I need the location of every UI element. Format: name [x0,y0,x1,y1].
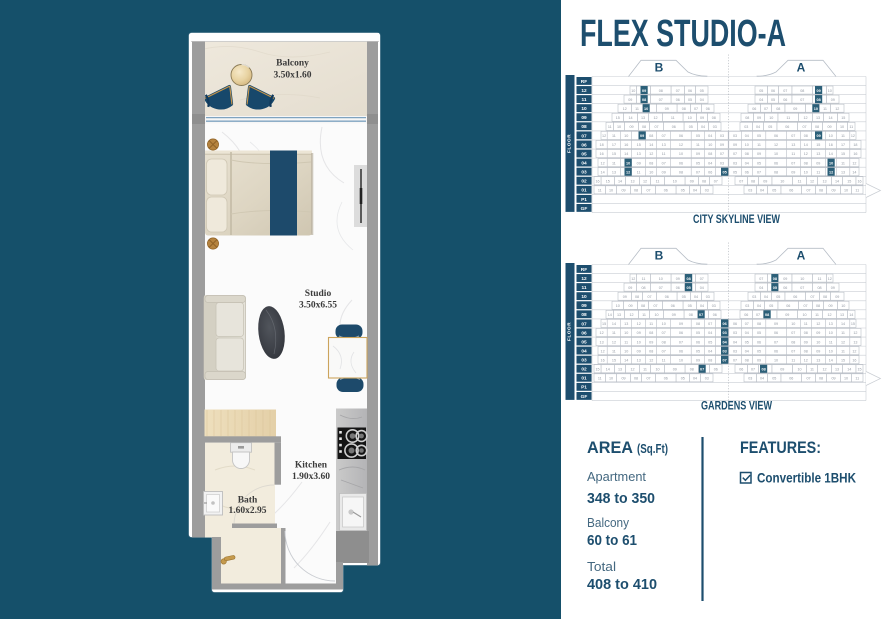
svg-text:05: 05 [771,98,775,102]
svg-text:13: 13 [816,116,820,120]
svg-text:10: 10 [840,125,844,129]
svg-text:RF: RF [581,79,587,85]
svg-text:10: 10 [624,134,628,138]
svg-text:05: 05 [773,286,777,290]
svg-text:10: 10 [631,89,635,93]
svg-text:11: 11 [841,349,845,353]
svg-text:07: 07 [659,98,663,102]
svg-text:04: 04 [700,304,704,308]
svg-text:09: 09 [816,161,820,165]
svg-text:03: 03 [712,304,716,308]
svg-text:04: 04 [708,349,712,353]
svg-text:10: 10 [804,170,808,174]
svg-text:07: 07 [722,358,726,362]
svg-text:3.50x1.60: 3.50x1.60 [274,71,312,81]
svg-text:09: 09 [757,116,761,120]
svg-text:07: 07 [700,367,704,371]
svg-text:11: 11 [849,125,853,129]
svg-text:04: 04 [756,125,760,129]
svg-text:04: 04 [760,189,764,193]
svg-text:09: 09 [649,340,653,344]
svg-text:408 to 410: 408 to 410 [587,577,657,593]
svg-text:12: 12 [629,313,633,317]
svg-text:06: 06 [752,107,756,111]
svg-text:11: 11 [581,285,586,291]
svg-text:14: 14 [835,179,839,183]
svg-text:08: 08 [649,134,653,138]
svg-text:07: 07 [646,377,650,381]
svg-text:12: 12 [851,134,855,138]
svg-text:03: 03 [733,134,737,138]
svg-text:03: 03 [733,349,737,353]
svg-text:09: 09 [642,89,646,93]
svg-text:03: 03 [705,189,709,193]
svg-text:08: 08 [686,277,690,281]
svg-text:09: 09 [816,134,820,138]
svg-text:08: 08 [649,349,653,353]
svg-text:15: 15 [841,152,845,156]
svg-text:GF: GF [581,206,588,212]
svg-text:12: 12 [827,313,831,317]
svg-text:07: 07 [696,170,700,174]
svg-text:11: 11 [829,340,833,344]
svg-text:Balcony: Balcony [276,59,309,69]
svg-text:05: 05 [757,134,761,138]
svg-text:14: 14 [624,152,628,156]
svg-text:10: 10 [791,322,795,326]
svg-text:12: 12 [630,367,634,371]
svg-text:05: 05 [696,134,700,138]
svg-text:05: 05 [757,161,761,165]
svg-text:14: 14 [829,152,833,156]
svg-text:08: 08 [642,125,646,129]
svg-text:06: 06 [676,286,680,290]
svg-text:09: 09 [763,179,767,183]
svg-text:15: 15 [612,358,616,362]
svg-text:11: 11 [612,349,616,353]
svg-text:Kitchen: Kitchen [295,461,328,471]
svg-text:06: 06 [789,189,793,193]
svg-text:07: 07 [739,179,743,183]
svg-text:12: 12 [649,152,653,156]
svg-text:14: 14 [618,179,622,183]
svg-text:10: 10 [679,358,683,362]
svg-text:10: 10 [844,377,848,381]
svg-text:Studio: Studio [305,289,332,299]
svg-text:FLEX STUDIO-A: FLEX STUDIO-A [580,13,786,55]
svg-text:08: 08 [791,340,795,344]
svg-text:10: 10 [829,161,833,165]
svg-text:06: 06 [665,295,669,299]
svg-text:11: 11 [804,322,808,326]
svg-text:11: 11 [791,152,795,156]
svg-text:07: 07 [751,367,755,371]
svg-text:12: 12 [853,331,857,335]
svg-text:03: 03 [752,295,756,299]
svg-text:12: 12 [810,179,814,183]
svg-text:07: 07 [720,152,724,156]
svg-text:05: 05 [733,170,737,174]
svg-text:11: 11 [637,170,641,174]
svg-text:14: 14 [612,322,616,326]
svg-text:03: 03 [745,304,749,308]
svg-text:03: 03 [705,377,709,381]
svg-text:11: 11 [612,161,616,165]
svg-text:12: 12 [623,107,627,111]
svg-text:08: 08 [804,161,808,165]
svg-text:13: 13 [816,152,820,156]
svg-text:15: 15 [841,358,845,362]
svg-text:FLOOR: FLOOR [566,134,571,153]
svg-text:12: 12 [602,134,606,138]
svg-text:12: 12 [612,340,616,344]
svg-text:09: 09 [662,170,666,174]
svg-text:09: 09 [780,367,784,371]
svg-text:11: 11 [608,125,612,129]
svg-text:16: 16 [600,152,604,156]
svg-text:14: 14 [849,313,853,317]
svg-text:FEATURES:: FEATURES: [740,439,821,457]
svg-text:05: 05 [686,286,690,290]
svg-text:14: 14 [601,170,605,174]
svg-text:06: 06 [783,286,787,290]
svg-text:10: 10 [609,377,613,381]
svg-text:13: 13 [637,358,641,362]
svg-text:07: 07 [733,358,737,362]
svg-text:04: 04 [759,286,763,290]
svg-text:07: 07 [791,331,795,335]
svg-text:07: 07 [647,295,651,299]
svg-text:09: 09 [679,322,683,326]
svg-text:12: 12 [774,143,778,147]
svg-text:06: 06 [745,170,749,174]
svg-text:10: 10 [624,331,628,335]
svg-text:03: 03 [744,125,748,129]
svg-text:06: 06 [786,304,790,308]
svg-text:05: 05 [722,170,726,174]
svg-text:11: 11 [612,331,616,335]
svg-text:10: 10 [673,179,677,183]
svg-text:09: 09 [816,331,820,335]
svg-text:14: 14 [606,367,610,371]
svg-text:11: 11 [671,116,675,120]
svg-text:14: 14 [828,116,832,120]
svg-text:15: 15 [637,143,641,147]
svg-text:06: 06 [688,89,692,93]
svg-text:18: 18 [853,143,857,147]
svg-text:06: 06 [672,125,676,129]
svg-text:09: 09 [828,304,832,308]
svg-text:05: 05 [759,89,763,93]
svg-text:09: 09 [757,152,761,156]
svg-text:10: 10 [659,277,663,281]
svg-text:11: 11 [656,179,660,183]
svg-text:05: 05 [768,125,772,129]
svg-text:03: 03 [706,295,710,299]
svg-text:06: 06 [783,98,787,102]
svg-text:11: 11 [786,116,790,120]
svg-text:06: 06 [679,331,683,335]
svg-text:06: 06 [581,330,587,336]
svg-text:08: 08 [642,98,646,102]
svg-text:10: 10 [829,134,833,138]
svg-text:08: 08 [690,367,694,371]
svg-text:12: 12 [835,107,839,111]
svg-text:10: 10 [829,331,833,335]
svg-text:09: 09 [720,143,724,147]
svg-text:P1: P1 [581,197,587,203]
svg-text:10: 10 [797,367,801,371]
svg-text:12: 12 [581,276,587,282]
svg-text:04: 04 [700,98,704,102]
svg-text:11: 11 [816,170,820,174]
svg-text:11: 11 [581,97,586,103]
svg-text:04: 04 [693,377,697,381]
svg-text:09: 09 [696,152,700,156]
svg-text:12: 12 [649,358,653,362]
svg-text:16: 16 [595,179,599,183]
svg-text:05: 05 [745,340,749,344]
svg-text:07: 07 [659,286,663,290]
svg-text:04: 04 [694,295,698,299]
svg-text:10: 10 [655,367,659,371]
svg-text:1.90x3.60: 1.90x3.60 [292,472,330,482]
svg-text:10: 10 [637,340,641,344]
svg-text:12: 12 [804,358,808,362]
svg-text:09: 09 [816,349,820,353]
svg-text:03: 03 [722,349,726,353]
svg-text:07: 07 [774,340,778,344]
svg-text:06: 06 [679,349,683,353]
svg-text:04: 04 [581,160,587,166]
svg-text:09: 09 [816,89,820,93]
svg-text:03: 03 [581,358,587,364]
svg-text:08: 08 [662,340,666,344]
svg-text:04: 04 [745,349,749,353]
svg-text:08: 08 [773,277,777,281]
svg-text:15: 15 [602,322,606,326]
svg-text:09: 09 [827,125,831,129]
svg-text:10: 10 [774,358,778,362]
svg-text:05: 05 [581,151,587,157]
svg-text:04: 04 [708,331,712,335]
svg-text:13: 13 [840,313,844,317]
svg-text:03: 03 [720,161,724,165]
svg-text:09: 09 [665,107,669,111]
svg-text:07: 07 [764,107,768,111]
svg-text:03: 03 [720,134,724,138]
svg-text:11: 11 [855,377,859,381]
svg-text:08: 08 [679,170,683,174]
svg-text:A: A [797,61,806,75]
svg-text:08: 08 [641,304,645,308]
svg-text:B: B [655,61,664,75]
svg-text:06: 06 [789,377,793,381]
svg-text:08: 08 [649,161,653,165]
svg-text:14: 14 [847,367,851,371]
svg-text:08: 08 [774,170,778,174]
svg-text:04: 04 [745,161,749,165]
svg-text:08: 08 [800,89,804,93]
svg-text:09: 09 [791,170,795,174]
svg-text:09: 09 [696,358,700,362]
svg-text:13: 13 [853,340,857,344]
svg-text:07: 07 [803,304,807,308]
svg-text:06: 06 [679,134,683,138]
svg-text:Total: Total [587,559,616,574]
svg-text:04: 04 [708,161,712,165]
svg-text:09: 09 [785,313,789,317]
svg-text:09: 09 [623,295,627,299]
svg-text:07: 07 [791,161,795,165]
svg-text:12: 12 [600,331,604,335]
svg-text:09: 09 [831,189,835,193]
svg-text:15: 15 [816,143,820,147]
svg-text:12: 12 [841,340,845,344]
svg-text:01: 01 [581,376,587,382]
svg-text:12: 12 [828,277,832,281]
svg-text:14: 14 [804,143,808,147]
svg-text:06: 06 [708,170,712,174]
svg-text:12: 12 [816,322,820,326]
svg-text:06: 06 [676,98,680,102]
svg-text:06: 06 [774,349,778,353]
svg-text:08: 08 [816,98,820,102]
svg-text:08: 08 [712,116,716,120]
svg-text:13: 13 [822,179,826,183]
svg-text:09: 09 [831,377,835,381]
svg-text:04: 04 [581,348,587,354]
svg-text:10: 10 [688,116,692,120]
svg-text:Apartment: Apartment [587,469,646,484]
svg-text:11: 11 [642,277,646,281]
svg-text:Bath: Bath [238,496,258,506]
svg-text:07: 07 [714,179,718,183]
svg-text:10: 10 [644,107,648,111]
svg-text:06: 06 [706,107,710,111]
svg-text:07: 07 [757,170,761,174]
svg-text:08: 08 [649,331,653,335]
svg-text:03: 03 [713,125,717,129]
svg-text:04: 04 [708,134,712,138]
svg-text:07: 07 [662,161,666,165]
svg-text:07: 07 [679,340,683,344]
svg-text:08: 08 [702,179,706,183]
svg-text:11: 11 [757,143,761,147]
svg-text:10: 10 [708,143,712,147]
svg-text:11: 11 [791,358,795,362]
svg-text:14: 14 [852,170,856,174]
svg-text:04: 04 [745,331,749,335]
svg-text:13: 13 [791,143,795,147]
svg-text:10: 10 [802,313,806,317]
svg-text:08: 08 [765,313,769,317]
svg-text:07: 07 [810,295,814,299]
svg-text:08: 08 [817,286,821,290]
svg-text:09: 09 [673,367,677,371]
svg-text:06: 06 [714,367,718,371]
svg-text:10: 10 [581,294,587,300]
svg-text:09: 09 [831,98,835,102]
svg-text:15: 15 [612,152,616,156]
svg-text:12: 12 [822,367,826,371]
svg-text:Balcony: Balcony [587,515,629,530]
svg-text:07: 07 [662,331,666,335]
svg-text:13: 13 [835,367,839,371]
svg-text:01: 01 [581,188,587,194]
svg-text:11: 11 [818,277,822,281]
svg-text:03: 03 [748,189,752,193]
svg-text:06: 06 [581,142,587,148]
svg-text:09: 09 [621,377,625,381]
svg-text:12: 12 [626,170,630,174]
svg-text:06: 06 [739,367,743,371]
svg-text:10: 10 [745,143,749,147]
svg-text:11: 11 [696,143,700,147]
svg-text:10: 10 [841,304,845,308]
svg-text:07: 07 [806,189,810,193]
svg-text:08: 08 [757,322,761,326]
svg-text:11: 11 [810,367,814,371]
svg-text:09: 09 [640,134,644,138]
svg-text:GF: GF [581,394,588,400]
svg-text:09: 09 [733,143,737,147]
svg-text:11: 11 [643,367,647,371]
svg-text:17: 17 [841,143,845,147]
svg-text:07: 07 [791,349,795,353]
svg-text:08: 08 [659,89,663,93]
svg-text:07: 07 [708,322,712,326]
svg-text:07: 07 [800,286,804,290]
svg-text:08: 08 [761,367,765,371]
svg-text:07: 07 [662,349,666,353]
svg-text:06: 06 [696,340,700,344]
svg-text:05: 05 [757,331,761,335]
svg-text:10: 10 [769,116,773,120]
svg-text:12: 12 [852,349,856,353]
svg-text:13: 13 [600,340,604,344]
svg-text:09: 09 [804,340,808,344]
svg-text:08: 08 [804,134,808,138]
svg-text:10: 10 [679,152,683,156]
svg-text:09: 09 [774,322,778,326]
svg-text:07: 07 [654,125,658,129]
svg-text:13: 13 [841,170,845,174]
svg-text:11: 11 [841,161,845,165]
svg-text:08: 08 [682,107,686,111]
svg-text:12: 12 [601,161,605,165]
svg-text:09: 09 [581,115,587,121]
svg-text:05: 05 [696,331,700,335]
svg-text:08: 08 [804,331,808,335]
svg-text:05: 05 [700,89,704,93]
svg-text:14: 14 [649,143,653,147]
svg-text:05: 05 [772,189,776,193]
svg-text:15: 15 [841,116,845,120]
svg-text:09: 09 [690,179,694,183]
svg-text:10: 10 [774,152,778,156]
svg-text:08: 08 [708,152,712,156]
svg-text:07: 07 [791,134,795,138]
svg-text:04: 04 [759,98,763,102]
svg-text:05: 05 [708,340,712,344]
svg-text:08: 08 [634,377,638,381]
svg-text:11: 11 [855,189,859,193]
svg-text:09: 09 [700,116,704,120]
svg-text:11: 11 [662,152,666,156]
svg-text:03: 03 [733,331,737,335]
svg-text:07: 07 [759,277,763,281]
